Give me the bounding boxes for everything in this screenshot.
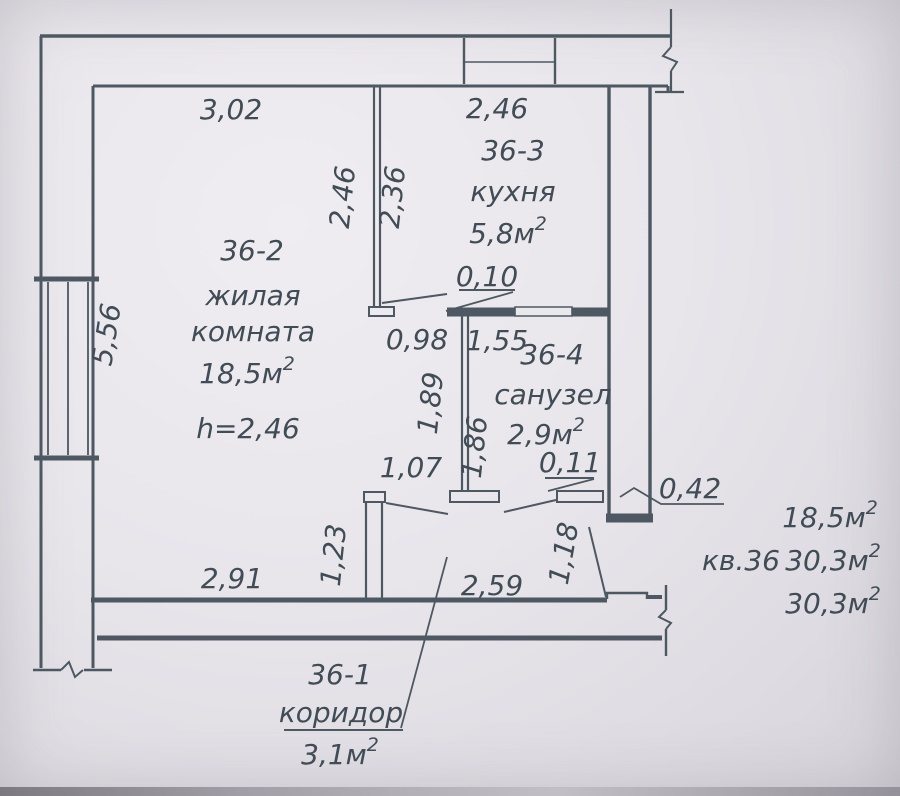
living-door-leaf <box>386 503 448 514</box>
summary-total-area-2-value: 30,3м <box>785 587 868 620</box>
summary-living-area-value: 18,5м <box>782 501 865 534</box>
living-room-ceiling-height: h=2,46 <box>196 412 300 445</box>
kitchen-name: кухня <box>470 175 555 208</box>
kitchen-area-sup: 2 <box>535 213 547 235</box>
living-room-area-sup: 2 <box>283 353 295 375</box>
living-room-name-line2: комната <box>191 315 315 348</box>
kitchen-door-leaf <box>382 294 447 303</box>
dim-kitchen-doorway: 0,10 <box>456 260 518 293</box>
dim-bathroom-width-top: 1,55 <box>466 324 528 357</box>
break-mark-bottom-left <box>61 662 83 677</box>
break-mark-bottom-right <box>659 610 671 629</box>
kitchen-area: 5,8м2 <box>469 213 547 250</box>
summary-labels: 18,5м2 кв.36 30,3м2 30,3м2 <box>702 497 881 620</box>
dim-bathroom-depth: 1,86 <box>455 414 494 479</box>
living-window-caps <box>34 279 99 458</box>
dim-entrance-doorway: 1,18 <box>542 520 585 587</box>
summary-total-area-sup: 2 <box>869 540 881 562</box>
summary-total-area-2: 30,3м2 <box>785 583 881 620</box>
living-door-partition <box>366 502 382 598</box>
corridor-number: 36-1 <box>308 658 372 691</box>
summary-apartment-number: кв.36 <box>702 544 780 577</box>
dim-door-partition: 1,23 <box>314 522 353 587</box>
summary-total-area-2-sup: 2 <box>869 583 881 605</box>
corridor-area: 3,1м2 <box>301 734 379 771</box>
bathroom-door-jamb-block <box>557 491 603 502</box>
summary-living-area-sup: 2 <box>866 497 878 519</box>
kitchen-area-value: 5,8м <box>469 217 535 250</box>
corridor-area-value: 3,1м <box>301 738 367 771</box>
partition-living-kitchen-foot <box>369 307 394 316</box>
walls <box>33 9 724 730</box>
dimension-labels: 3,02 2,46 2,46 2,36 5,56 0,10 0,98 1,55 … <box>85 92 721 602</box>
living-door-partition-cap <box>364 492 385 502</box>
bathroom-door-leaf <box>504 500 556 512</box>
floor-plan-photo: 3,02 2,46 2,46 2,36 5,56 0,10 0,98 1,55 … <box>0 0 900 796</box>
break-mark-top-right <box>663 47 677 71</box>
entrance-door-leaf <box>589 527 606 597</box>
wall-right-thick <box>609 87 650 514</box>
entrance-threshold-notch <box>607 593 647 599</box>
partition-living-bathroom-foot <box>450 491 499 502</box>
bathroom-area-value: 2,9м <box>507 418 573 451</box>
bathroom-number: 36-4 <box>520 338 584 371</box>
bathroom-doorway-leader <box>548 479 594 491</box>
dim-partition-living-side: 1,89 <box>411 370 450 435</box>
summary-total-area: 30,3м2 <box>785 540 881 577</box>
bathroom-name: санузел <box>494 378 612 411</box>
corridor-name: коридор <box>279 696 403 729</box>
living-window-lines <box>48 282 88 455</box>
living-room-name-line1: жилая <box>204 279 300 312</box>
kitchen-number: 36-3 <box>481 134 545 167</box>
dim-living-opening: 0,98 <box>386 323 448 356</box>
dim-living-width-bottom: 2,91 <box>201 562 263 595</box>
living-room-area-value: 18,5м <box>199 357 282 390</box>
dim-corridor-width: 2,59 <box>461 569 523 602</box>
dim-living-width-top: 3,02 <box>200 93 262 126</box>
bathroom-transom-window <box>515 307 572 316</box>
floor-plan-drawing: 3,02 2,46 2,46 2,36 5,56 0,10 0,98 1,55 … <box>0 0 900 796</box>
living-room-number: 36-2 <box>220 234 284 267</box>
dim-kitchen-width-top: 2,46 <box>466 92 528 125</box>
corridor-leader <box>401 557 447 728</box>
dim-kitchen-partition-height: 2,36 <box>373 164 412 229</box>
corridor-area-sup: 2 <box>367 734 379 756</box>
summary-living-area: 18,5м2 <box>782 497 878 534</box>
dim-living-doorway: 1,07 <box>380 451 443 484</box>
summary-total-area-value: 30,3м <box>785 544 868 577</box>
kitchen-window-jambs <box>464 38 555 84</box>
photo-bottom-edge <box>0 787 900 796</box>
bathroom-area-sup: 2 <box>573 414 585 436</box>
dim-wall-thickness: 0,42 <box>659 472 721 505</box>
dim-living-partition-height: 2,46 <box>323 164 362 229</box>
living-room-area: 18,5м2 <box>199 353 295 390</box>
